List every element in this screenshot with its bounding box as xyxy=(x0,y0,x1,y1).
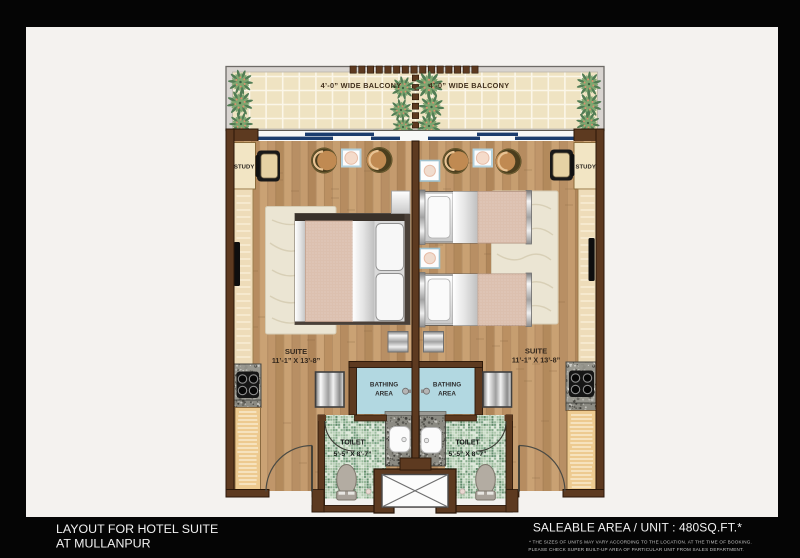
svg-text:AREA: AREA xyxy=(438,391,456,398)
svg-text:* THE SIZES OF UNITS MAY VARY: * THE SIZES OF UNITS MAY VARY ACCORDING … xyxy=(529,540,752,545)
svg-text:SUITE: SUITE xyxy=(285,347,307,356)
svg-text:AT MULLANPUR: AT MULLANPUR xyxy=(56,537,151,551)
svg-text:AREA: AREA xyxy=(375,391,393,398)
svg-text:SUITE: SUITE xyxy=(525,347,547,356)
svg-text:STUDY: STUDY xyxy=(234,165,254,171)
svg-text:SALEABLE AREA / UNIT : 480SQ.F: SALEABLE AREA / UNIT : 480SQ.FT.* xyxy=(533,521,742,535)
svg-text:5’-5” X 8’-7”: 5’-5” X 8’-7” xyxy=(449,451,487,458)
svg-text:TOILET: TOILET xyxy=(340,440,365,447)
svg-text:BATHING: BATHING xyxy=(370,382,398,389)
svg-text:11’-1” X 13’-8”: 11’-1” X 13’-8” xyxy=(512,356,561,365)
svg-text:5’-5” X 8’-7”: 5’-5” X 8’-7” xyxy=(334,451,372,458)
svg-text:PLEASE CHECK SUPER BUILT-UP AR: PLEASE CHECK SUPER BUILT-UP AREA OF PART… xyxy=(528,547,744,552)
svg-text:TOILET: TOILET xyxy=(455,440,480,447)
svg-text:4’-0” WIDE BALCONY: 4’-0” WIDE BALCONY xyxy=(321,81,402,90)
svg-text:BATHING: BATHING xyxy=(433,382,461,389)
svg-text:LAYOUT FOR HOTEL SUITE: LAYOUT FOR HOTEL SUITE xyxy=(56,522,218,536)
svg-text:11’-1” X 13’-8”: 11’-1” X 13’-8” xyxy=(272,356,321,365)
svg-text:STUDY: STUDY xyxy=(575,165,595,171)
svg-text:4’-0” WIDE BALCONY: 4’-0” WIDE BALCONY xyxy=(429,81,510,90)
